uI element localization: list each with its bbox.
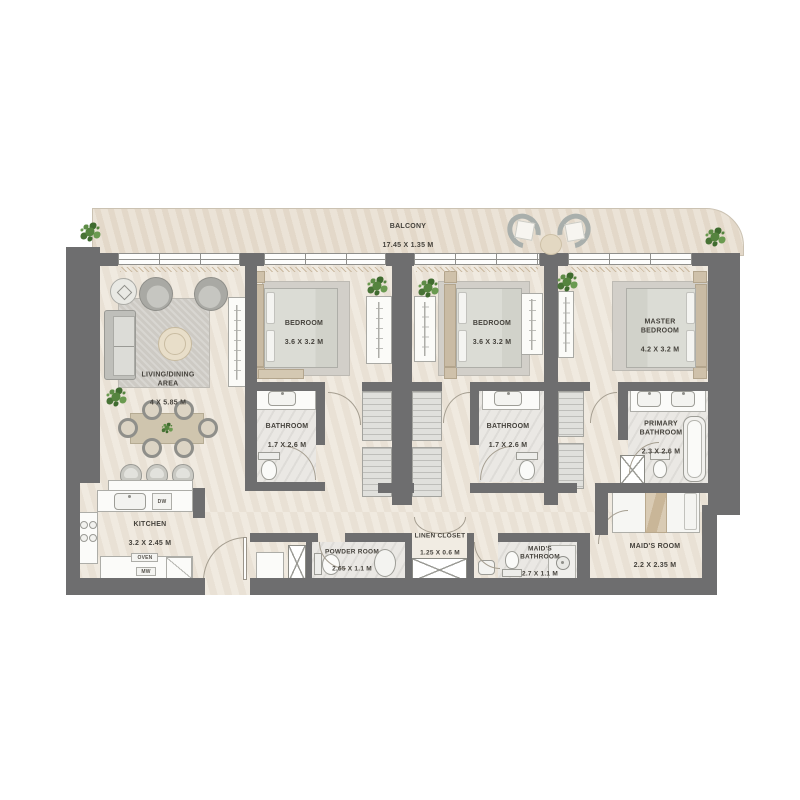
- curtain: [570, 267, 690, 272]
- wall-segment: [558, 382, 590, 391]
- toilet-bowl: [519, 460, 535, 480]
- primary-bathroom-label: PRIMARY BATHROOM 2.3 X 2.6 M: [640, 410, 683, 465]
- microwave-label: MW: [141, 569, 150, 575]
- bedroom1-label: BEDROOM 3.6 X 3.2 M: [285, 310, 324, 356]
- toilet-tank: [314, 553, 322, 575]
- bathroom2-label: BATHROOM 1.7 X 2.6 M: [487, 413, 530, 459]
- wall-segment: [378, 483, 414, 493]
- room-dims: 4 X 5.85 M: [141, 398, 194, 407]
- wall-segment: [405, 533, 412, 583]
- room-name: BEDROOM: [285, 319, 324, 328]
- wall-segment: [193, 488, 205, 518]
- wall-segment: [250, 578, 717, 595]
- wall-segment: [306, 542, 312, 583]
- balcony-label: BALCONY 17.45 X 1.35 M: [383, 213, 434, 259]
- wall-segment: [92, 253, 118, 266]
- wall-segment: [66, 578, 205, 595]
- room-name: MASTER BEDROOM: [641, 318, 680, 336]
- wall-segment: [362, 382, 392, 391]
- linen-closet-label: LINEN CLOSET 1.25 X 0.6 M: [415, 524, 466, 567]
- bed-headboard: [444, 284, 456, 367]
- room-name: BALCONY: [383, 222, 434, 231]
- window: [568, 253, 692, 265]
- room-name: BATHROOM: [487, 422, 530, 431]
- bedroom1-dresser: [258, 369, 304, 379]
- curtain: [120, 267, 238, 272]
- wall-segment: [595, 483, 708, 493]
- room-dims: 1.7 X 2.6 M: [487, 441, 530, 450]
- room-dims: 17.45 X 1.35 M: [383, 241, 434, 250]
- closet-unit: [362, 391, 392, 441]
- stove-burner-icon: [80, 521, 88, 529]
- window: [264, 253, 386, 265]
- coffee-table: [158, 327, 192, 361]
- closet-unit: [412, 447, 442, 497]
- curtain: [266, 267, 384, 272]
- wall-segment: [245, 263, 257, 490]
- wall-segment: [692, 253, 708, 266]
- dining-chair: [174, 438, 194, 458]
- room-dims: 1.7 X 2.6 M: [266, 441, 309, 450]
- room-dims: 2.7 X 1.1 M: [520, 571, 560, 580]
- dining-chair: [118, 418, 138, 438]
- washing-machine: [256, 552, 284, 579]
- nightstand: [444, 367, 457, 379]
- wall-segment: [595, 493, 608, 535]
- stove-burner-icon: [89, 521, 97, 529]
- room-name: MAID'S BATHROOM: [520, 545, 560, 562]
- entry-door-leaf: [243, 537, 247, 580]
- media-console: [228, 297, 246, 387]
- sofa: [104, 310, 136, 380]
- wall-segment: [66, 247, 100, 483]
- stove-burner-icon: [80, 534, 88, 542]
- wall-segment: [470, 483, 577, 493]
- curtain: [416, 267, 538, 272]
- wall-segment: [245, 382, 325, 391]
- room-dims: 3.6 X 3.2 M: [473, 338, 512, 347]
- room-name: KITCHEN: [129, 520, 172, 529]
- pillow: [458, 330, 467, 362]
- master-label: MASTER BEDROOM 4.2 X 3.2 M: [641, 308, 680, 363]
- bedroom2-wardrobe-left: [414, 296, 436, 362]
- fridge: [166, 557, 192, 579]
- balcony-table: [540, 234, 562, 255]
- wall-segment: [470, 391, 479, 445]
- room-dims: 3.2 X 2.45 M: [129, 539, 172, 548]
- toilet-tank: [502, 569, 522, 577]
- dining-chair: [142, 438, 162, 458]
- closet-unit: [558, 391, 584, 437]
- room-name: MAID'S ROOM: [630, 542, 681, 551]
- faucet-icon: [507, 392, 510, 395]
- wall-segment: [316, 391, 325, 445]
- stove-burner-icon: [89, 534, 97, 542]
- toilet-bowl: [505, 551, 519, 569]
- wall-segment: [392, 263, 412, 505]
- living-label: LIVING/DINING AREA 4 X 5.85 M: [141, 361, 194, 416]
- pillow: [686, 292, 695, 324]
- room-dims: 1.25 X 0.6 M: [415, 549, 466, 558]
- nightstand: [444, 271, 457, 283]
- faucet-icon: [128, 495, 131, 498]
- wall-segment: [702, 512, 717, 595]
- kitchen-label: KITCHEN 3.2 X 2.45 M: [129, 511, 172, 557]
- room-dims: 2.2 X 2.35 M: [630, 561, 681, 570]
- bed-headboard: [695, 284, 707, 367]
- powder-room-label: POWDER ROOM 2.65 X 1.1 M: [325, 540, 379, 583]
- wall-segment: [245, 482, 325, 491]
- wall-segment: [250, 533, 318, 542]
- closet-unit: [412, 391, 442, 441]
- master-wardrobe: [558, 291, 574, 358]
- faucet-icon: [281, 392, 284, 395]
- pillow: [266, 292, 275, 324]
- blanket: [645, 490, 667, 533]
- floor-plan: DW OVEN MW: [0, 0, 800, 800]
- window: [118, 253, 240, 265]
- bedroom1-wardrobe: [366, 296, 392, 364]
- room-name: BATHROOM: [266, 422, 309, 431]
- room-name: BEDROOM: [473, 319, 512, 328]
- wall-segment: [577, 533, 590, 583]
- room-dims: 3.6 X 3.2 M: [285, 338, 324, 347]
- wall-segment: [412, 382, 442, 391]
- nightstand: [693, 367, 707, 379]
- wall-segment: [470, 382, 544, 391]
- toilet-bowl: [261, 460, 277, 480]
- pillow: [686, 330, 695, 362]
- wall-segment: [467, 533, 474, 583]
- bathroom1-label: BATHROOM 1.7 X 2.6 M: [266, 413, 309, 459]
- bedroom2-wardrobe-right: [521, 293, 543, 355]
- wall-segment: [708, 253, 740, 512]
- room-name: PRIMARY BATHROOM: [640, 420, 683, 438]
- maids-room-label: MAID'S ROOM 2.2 X 2.35 M: [630, 533, 681, 579]
- room-name: LIVING/DINING AREA: [141, 371, 194, 389]
- pillow: [684, 493, 697, 530]
- dishwasher-label: DW: [158, 499, 167, 505]
- faucet-icon: [648, 392, 651, 395]
- wall-segment: [618, 391, 628, 440]
- pillow: [458, 292, 467, 324]
- room-name: POWDER ROOM: [325, 548, 379, 557]
- room-dims: 2.3 X 2.6 M: [640, 447, 683, 456]
- bathtub: [683, 416, 706, 482]
- pillow: [266, 330, 275, 362]
- bedroom2-label: BEDROOM 3.6 X 3.2 M: [473, 310, 512, 356]
- nightstand: [693, 271, 707, 283]
- dining-chair: [198, 418, 218, 438]
- shaft: [288, 545, 306, 582]
- wall-segment: [544, 263, 558, 505]
- maids-bathroom-label: MAID'S BATHROOM 2.7 X 1.1 M: [520, 536, 560, 587]
- faucet-icon: [682, 392, 685, 395]
- room-dims: 2.65 X 1.1 M: [325, 565, 379, 574]
- side-table: [110, 278, 137, 305]
- room-dims: 4.2 X 3.2 M: [641, 345, 680, 354]
- wall-segment: [618, 382, 708, 391]
- room-name: LINEN CLOSET: [415, 532, 466, 541]
